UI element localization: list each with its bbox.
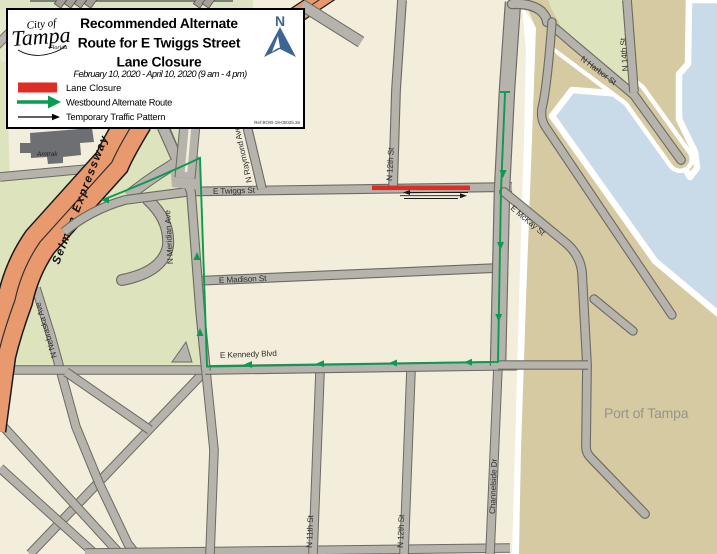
svg-text:N 12th St: N 12th St xyxy=(396,514,406,548)
svg-text:Port of Tampa: Port of Tampa xyxy=(604,405,689,421)
svg-text:Lane Closure: Lane Closure xyxy=(116,55,202,70)
svg-text:N 12th St: N 12th St xyxy=(385,147,396,181)
svg-text:N: N xyxy=(275,13,285,29)
svg-text:Recommended Alternate: Recommended Alternate xyxy=(80,16,238,31)
svg-text:Temporary Traffic Pattern: Temporary Traffic Pattern xyxy=(66,112,165,122)
svg-text:Florida: Florida xyxy=(48,44,67,51)
svg-text:Westbound Alternate Route: Westbound Alternate Route xyxy=(66,98,172,108)
svg-text:E Twiggs St: E Twiggs St xyxy=(213,186,256,196)
svg-text:Route for E Twiggs Street: Route for E Twiggs Street xyxy=(78,36,241,51)
svg-text:Amtrak: Amtrak xyxy=(36,151,58,158)
svg-text:N 11th St: N 11th St xyxy=(305,514,315,548)
svg-text:Ref:BOW-19-00025.36: Ref:BOW-19-00025.36 xyxy=(254,120,300,125)
svg-text:Lane Closure: Lane Closure xyxy=(66,83,121,93)
svg-text:February 10, 2020 - April 10,: February 10, 2020 - April 10, 2020 (9 am… xyxy=(73,69,247,79)
